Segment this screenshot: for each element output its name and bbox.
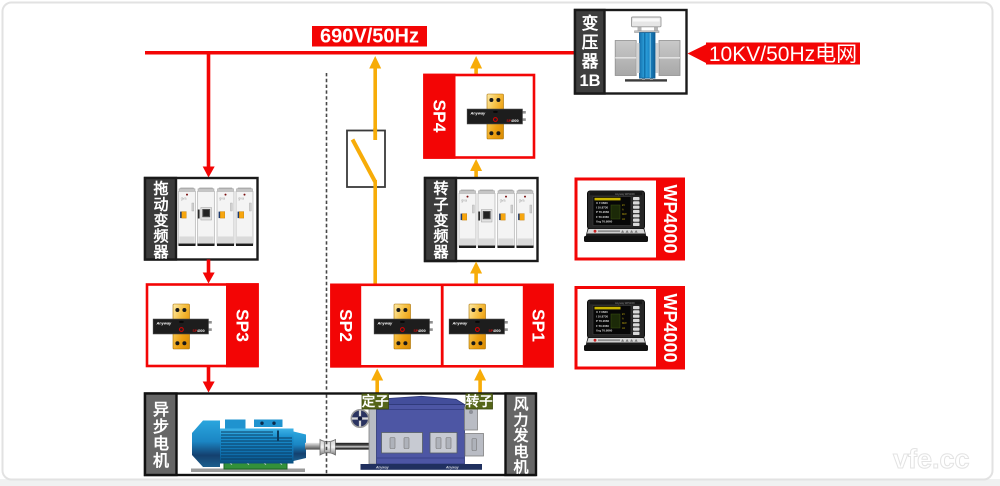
svg-text:SP2: SP2 bbox=[336, 309, 356, 342]
svg-text:异步电机: 异步电机 bbox=[153, 401, 169, 470]
svg-text:SP1: SP1 bbox=[529, 309, 549, 342]
svg-text:WP4000: WP4000 bbox=[660, 293, 680, 362]
svg-text:WP4000: WP4000 bbox=[660, 184, 680, 253]
svg-text:10KV/50Hz电网: 10KV/50Hz电网 bbox=[709, 43, 857, 66]
svg-text:SP4: SP4 bbox=[430, 99, 450, 132]
svg-text:Anyway: Anyway bbox=[445, 466, 459, 470]
svg-text:Anyway: Anyway bbox=[375, 466, 389, 470]
svg-text:拖动变频器: 拖动变频器 bbox=[152, 180, 169, 262]
svg-text:定子: 定子 bbox=[362, 393, 389, 409]
svg-text:风力发电机: 风力发电机 bbox=[512, 396, 529, 476]
svg-text:变压器1B: 变压器1B bbox=[579, 13, 600, 90]
svg-text:转子变频器: 转子变频器 bbox=[432, 180, 449, 262]
svg-text:690V/50Hz: 690V/50Hz bbox=[320, 26, 419, 48]
svg-text:vfe.cc: vfe.cc bbox=[893, 444, 970, 474]
svg-text:SP3: SP3 bbox=[233, 309, 253, 342]
svg-text:转子: 转子 bbox=[466, 393, 493, 409]
